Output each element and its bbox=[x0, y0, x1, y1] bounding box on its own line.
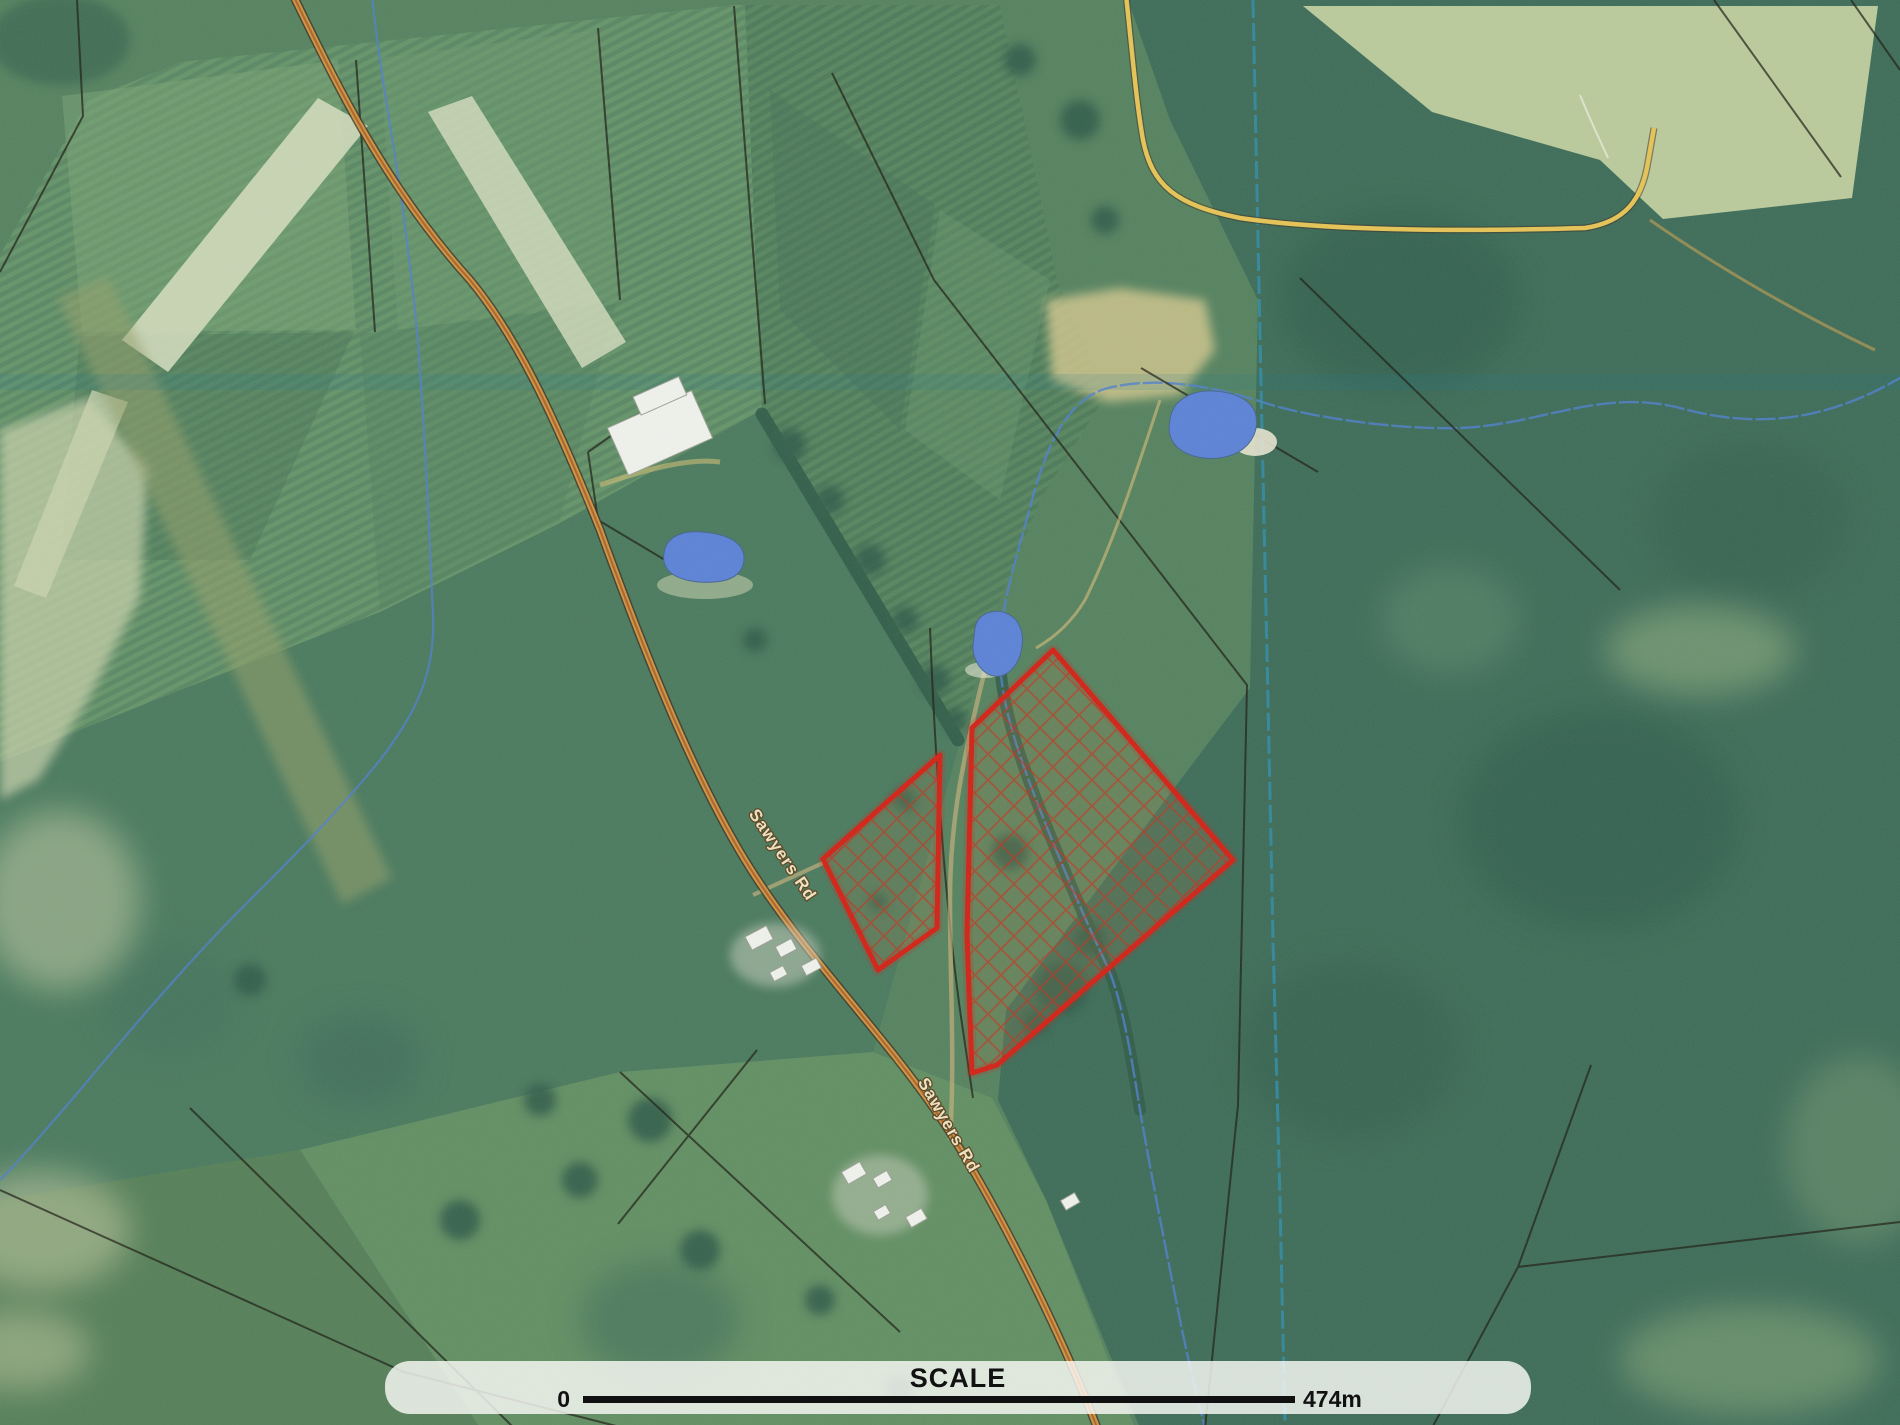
scale-bar: SCALE 0 474m bbox=[385, 1361, 1531, 1414]
scale-title: SCALE bbox=[910, 1363, 1007, 1393]
map-viewport[interactable]: Sawyers Rd Sawyers Rd SCALE 0 474m bbox=[0, 0, 1900, 1425]
photo-grain bbox=[0, 0, 1900, 1425]
aerial-map-image: Sawyers Rd Sawyers Rd SCALE 0 474m bbox=[0, 0, 1900, 1425]
scale-start-label: 0 bbox=[557, 1386, 570, 1412]
scale-bar-line bbox=[583, 1396, 1295, 1403]
scale-end-label: 474m bbox=[1303, 1386, 1362, 1412]
